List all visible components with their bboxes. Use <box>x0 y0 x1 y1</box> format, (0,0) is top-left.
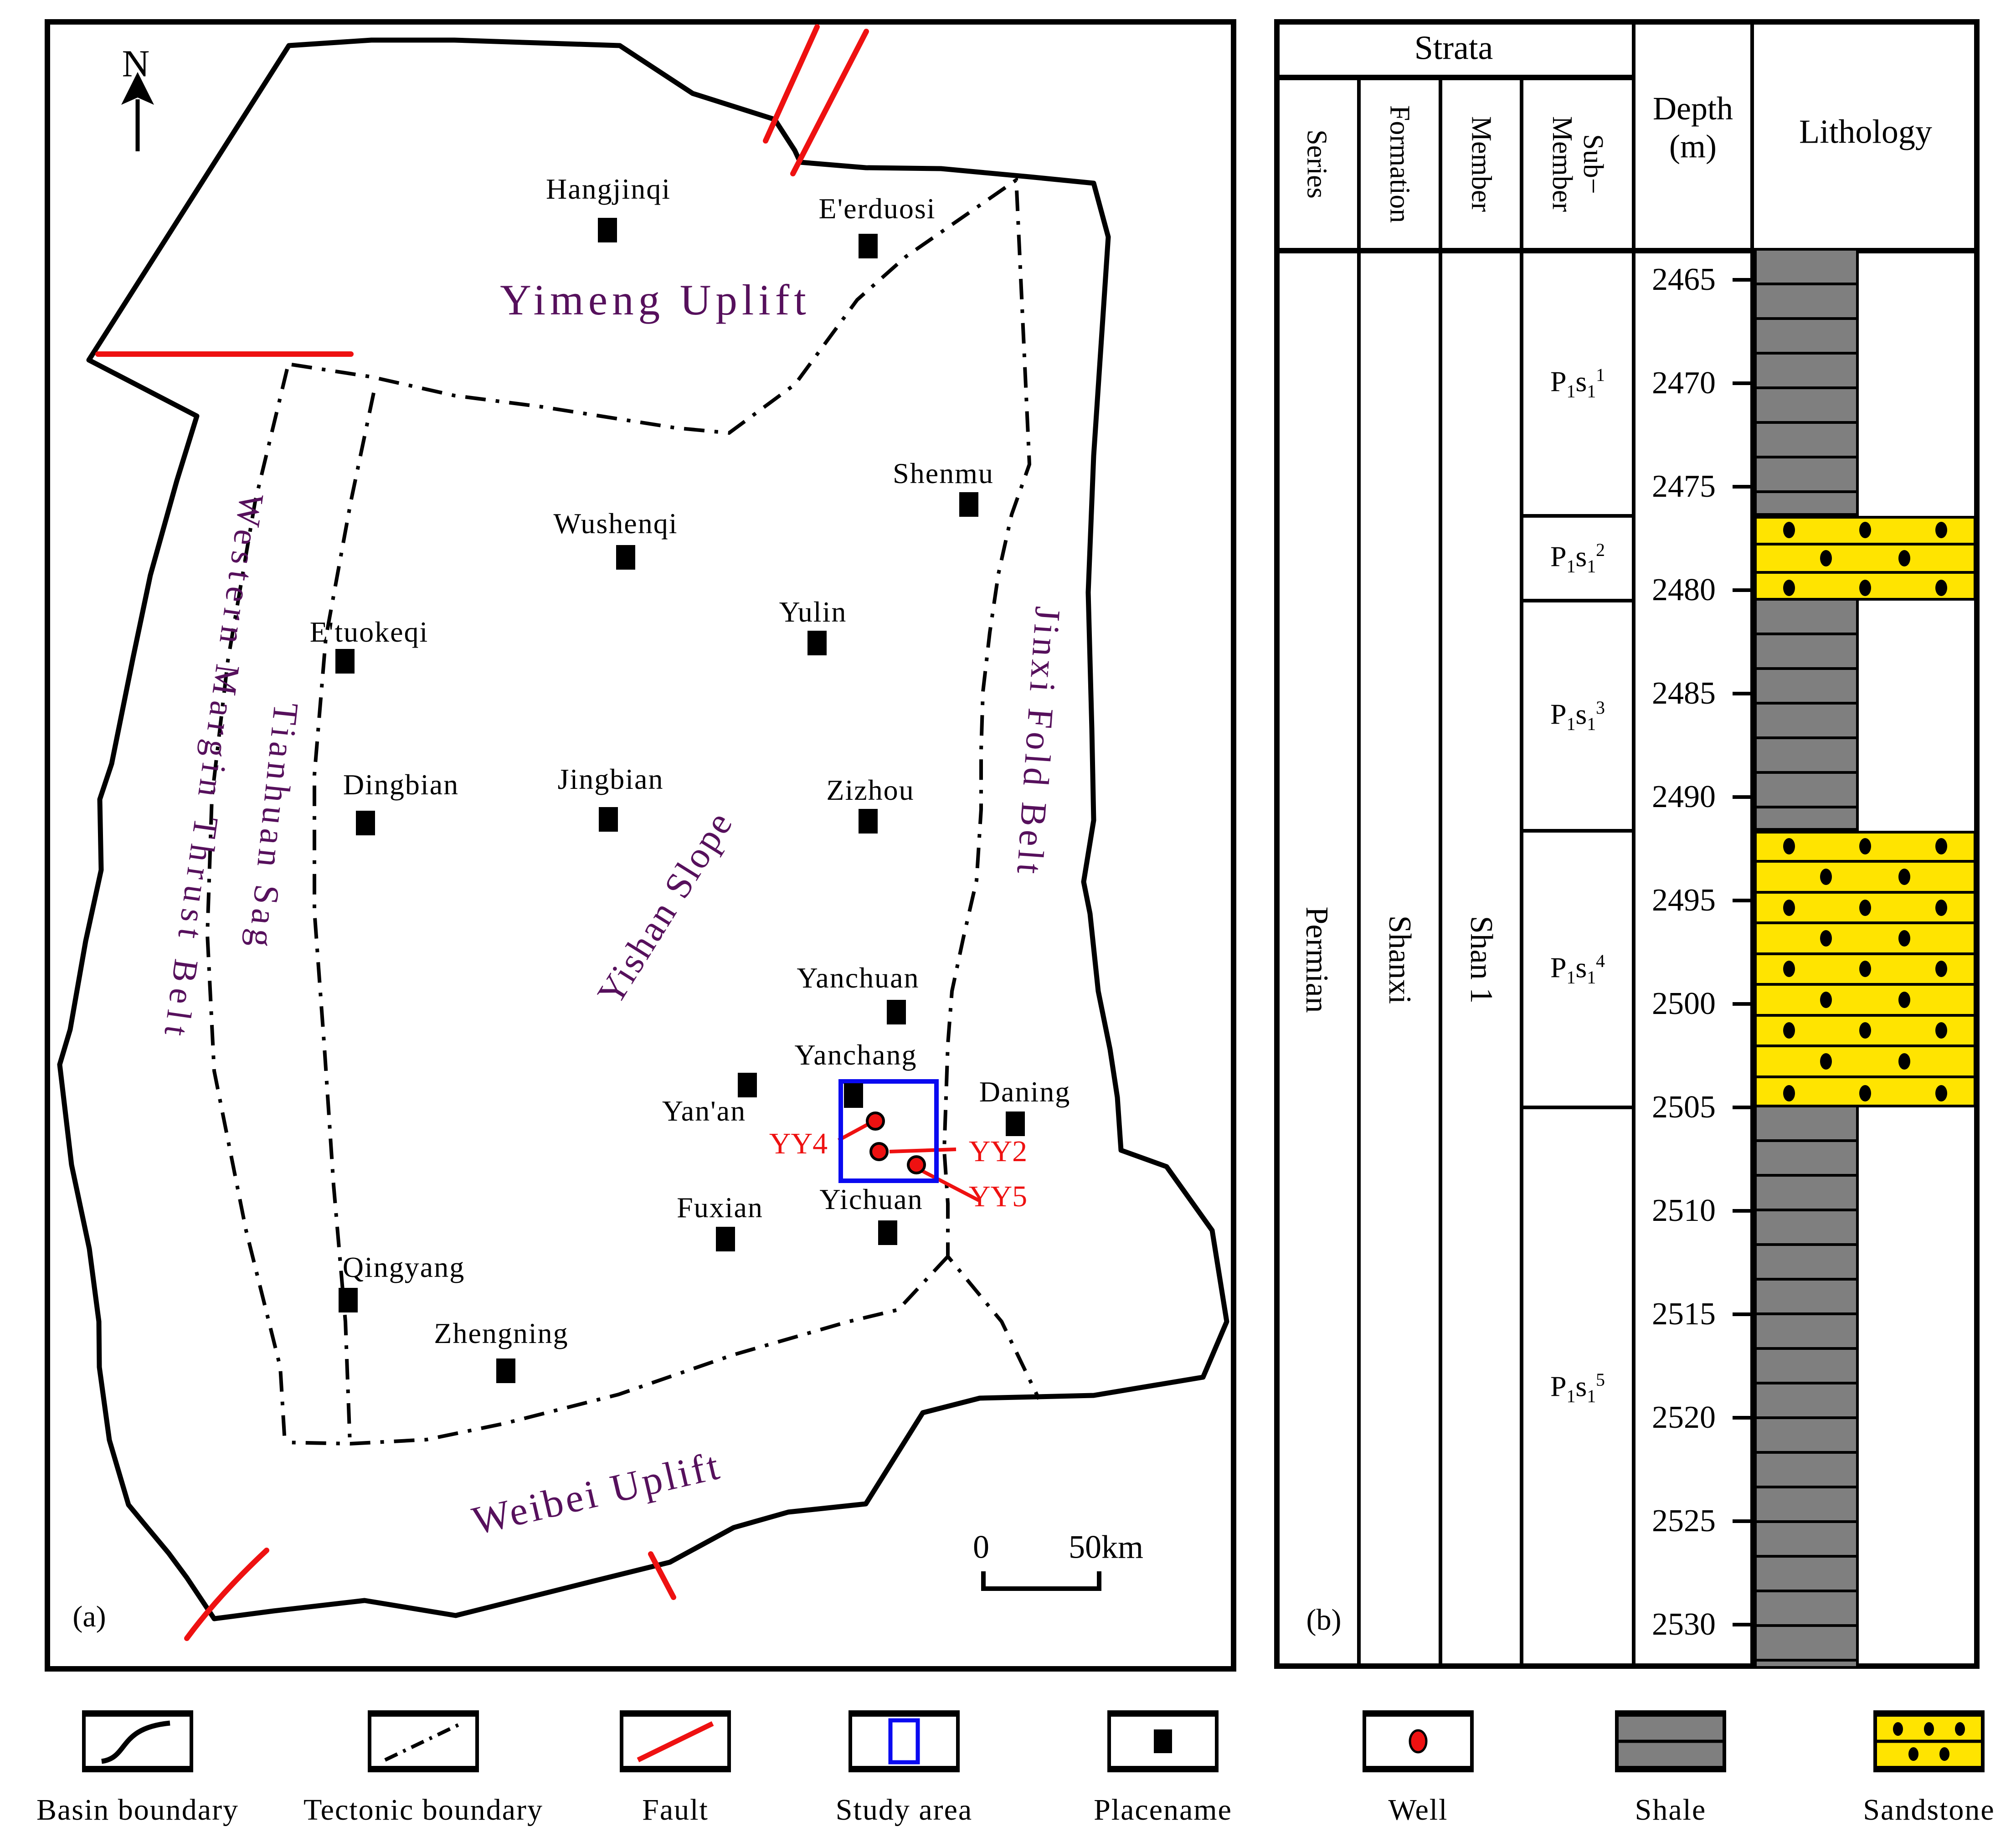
sandstone-band <box>1757 545 1974 574</box>
placename-marker <box>716 1227 735 1251</box>
tectonic-boundary-weibei <box>285 1256 948 1444</box>
lithology-shale-bar <box>1754 601 1859 831</box>
submember-label: P1s15 <box>1550 1369 1605 1407</box>
legend-label-tectonic-boundary: Tectonic boundary <box>303 1793 543 1827</box>
sandstone-dot <box>1859 580 1871 596</box>
depth-tick-label: 2510 <box>1652 1193 1716 1229</box>
well-label-yy5: YY5 <box>969 1179 1027 1214</box>
placename-marker <box>598 218 617 242</box>
sandstone-dot <box>1783 900 1795 916</box>
well-dot-icon <box>1366 1717 1470 1766</box>
lithology-shale-bar <box>1754 1107 1859 1669</box>
legend-label-study-area: Study area <box>836 1793 972 1827</box>
sandstone-fill-icon <box>1877 1717 1981 1766</box>
sandstone-band <box>1757 1078 1974 1109</box>
sandstone-band <box>1757 863 1974 893</box>
leader-yy2 <box>890 1149 956 1152</box>
fault-line-icon <box>623 1717 727 1766</box>
placename-label: Hangjinqi <box>546 172 671 206</box>
sandstone-dot <box>1898 1053 1910 1070</box>
lithology-sandstone-bar <box>1754 516 1976 601</box>
scale-bar <box>983 1571 1099 1589</box>
col-line-series-formation <box>1357 77 1361 1669</box>
well-dot-yy5 <box>907 1155 926 1174</box>
sandstone-band <box>1757 924 1974 955</box>
placename-label: Zizhou <box>826 773 914 807</box>
sandstone-dot <box>1898 869 1910 885</box>
sandstone-dot <box>1859 838 1871 854</box>
submember-divider <box>1523 1106 1632 1109</box>
depth-tick-mark <box>1733 899 1753 902</box>
depth-tick-mark <box>1733 381 1753 385</box>
depth-tick-label: 2475 <box>1652 468 1716 505</box>
header-strata: Strata <box>1414 29 1493 68</box>
placename-label: E'erduosi <box>818 192 936 226</box>
sandstone-dot <box>1783 838 1795 854</box>
placename-label: Fuxian <box>677 1191 763 1225</box>
submember-label: P1s14 <box>1550 950 1605 988</box>
submember-divider <box>1523 829 1632 833</box>
sandstone-dot <box>1820 550 1832 566</box>
placename-square-icon <box>1111 1717 1215 1766</box>
sandstone-dot <box>1820 1053 1832 1070</box>
placename-label: Yan'an <box>662 1094 746 1128</box>
placename-label: Yulin <box>779 595 847 629</box>
placename-label: Daning <box>979 1075 1070 1109</box>
sandstone-dot <box>1783 961 1795 977</box>
study-rect-icon <box>852 1717 956 1766</box>
submember-label: P1s11 <box>1550 365 1605 402</box>
placename-marker <box>959 492 978 517</box>
depth-tick-label: 2520 <box>1652 1400 1716 1436</box>
col-line-depth-lithology <box>1750 19 1754 1669</box>
depth-tick-mark <box>1733 588 1753 592</box>
depth-tick-mark <box>1733 1623 1753 1626</box>
depth-tick-label: 2525 <box>1652 1503 1716 1539</box>
tectonic-line-icon <box>371 1717 475 1766</box>
depth-tick-label: 2470 <box>1652 365 1716 401</box>
sandstone-dot <box>1898 550 1910 566</box>
submember-label: P1s12 <box>1550 540 1605 577</box>
legend-box-tectonic-boundary <box>368 1710 479 1772</box>
placename-label: Jingbian <box>558 762 664 796</box>
header-lithology: Lithology <box>1799 113 1932 152</box>
fault-top-1 <box>766 27 817 141</box>
header-depth: Depth (m) <box>1653 90 1733 165</box>
depth-tick-label: 2515 <box>1652 1296 1716 1333</box>
placename-label: Zhengning <box>434 1317 568 1350</box>
legend-box-study-area <box>849 1710 960 1772</box>
sandstone-band <box>1757 955 1974 986</box>
legend-label-basin-boundary: Basin boundary <box>36 1793 239 1827</box>
sandstone-dot <box>1859 522 1871 538</box>
sandstone-dot <box>1898 992 1910 1008</box>
legend-box-shale <box>1615 1710 1726 1772</box>
legend-label-shale: Shale <box>1635 1793 1707 1827</box>
well-dot-yy4 <box>866 1111 885 1131</box>
sandstone-dot <box>1783 1022 1795 1039</box>
legend-box-sandstone <box>1873 1710 1985 1772</box>
sandstone-dot <box>1859 961 1871 977</box>
sandstone-dot <box>1935 580 1947 596</box>
legend-box-fault <box>620 1710 731 1772</box>
sandstone-band <box>1757 1047 1974 1078</box>
sandstone-dot <box>1935 522 1947 538</box>
depth-tick-label: 2490 <box>1652 779 1716 815</box>
lithology-shale-bar <box>1754 251 1859 516</box>
placename-marker <box>335 649 355 674</box>
depth-tick-label: 2495 <box>1652 882 1716 919</box>
col-line-submember-depth <box>1632 19 1635 1669</box>
sandstone-dot <box>1783 1085 1795 1101</box>
lithology-sandstone-bar <box>1754 831 1976 1107</box>
placename-marker <box>878 1220 897 1245</box>
submember-label: P1s13 <box>1550 697 1605 734</box>
depth-tick-mark <box>1733 1519 1753 1523</box>
sandstone-dot <box>1820 869 1832 885</box>
depth-tick-mark <box>1733 1106 1753 1109</box>
header-series: Series <box>1301 129 1333 199</box>
header-sub-member: Sub− Member <box>1547 116 1609 212</box>
placename-marker <box>807 631 827 655</box>
placename-label: E'tuokeqi <box>310 615 429 649</box>
depth-tick-label: 2530 <box>1652 1606 1716 1643</box>
placename-marker <box>859 234 878 258</box>
scale-zero-label: 0 <box>973 1528 989 1566</box>
sandstone-band <box>1757 894 1974 924</box>
tectonic-boundary-tianhuan <box>314 393 374 1444</box>
placename-marker <box>859 809 878 834</box>
formation-value: Shanxi <box>1381 916 1418 1004</box>
placename-marker <box>844 1083 863 1108</box>
sandstone-dot <box>1783 522 1795 538</box>
placename-label: Qingyang <box>343 1250 465 1284</box>
placename-marker <box>887 1000 906 1024</box>
placename-marker <box>599 807 618 832</box>
placename-marker <box>356 811 375 835</box>
depth-tick-label: 2500 <box>1652 986 1716 1022</box>
north-label: N <box>122 42 150 86</box>
strata-divider <box>1274 75 1634 80</box>
depth-tick-mark <box>1733 485 1753 489</box>
col-line-formation-member <box>1439 77 1442 1669</box>
submember-divider <box>1523 599 1632 602</box>
figure-root: { "colors": { "region_purple": "#56105c"… <box>0 0 2016 1837</box>
placename-marker <box>1006 1111 1025 1136</box>
well-label-yy2: YY2 <box>969 1134 1027 1169</box>
sandstone-dot <box>1898 930 1910 947</box>
sandstone-dot <box>1783 580 1795 596</box>
depth-tick-label: 2505 <box>1652 1089 1716 1126</box>
depth-tick-mark <box>1733 692 1753 695</box>
scale-distance-label: 50km <box>1069 1528 1143 1566</box>
depth-tick-mark <box>1733 278 1753 282</box>
placename-marker <box>738 1073 757 1097</box>
map-panel-label: (a) <box>72 1600 106 1634</box>
column-panel-label: (b) <box>1306 1603 1342 1637</box>
depth-tick-mark <box>1733 1416 1753 1420</box>
header-formation: Formation <box>1383 105 1416 223</box>
legend-box-placename <box>1107 1710 1219 1772</box>
legend-box-well <box>1363 1710 1474 1772</box>
placename-label: Dingbian <box>343 768 459 802</box>
depth-tick-label: 2485 <box>1652 675 1716 712</box>
legend-label-fault: Fault <box>642 1793 709 1827</box>
sandstone-dot <box>1859 900 1871 916</box>
placename-label: Shenmu <box>893 457 994 490</box>
sandstone-dot <box>1935 961 1947 977</box>
sandstone-band <box>1757 1017 1974 1047</box>
legend-label-sandstone: Sandstone <box>1863 1793 1995 1827</box>
placename-label: Wushenqi <box>554 507 678 540</box>
submember-divider <box>1523 514 1632 518</box>
depth-tick-mark <box>1733 1209 1753 1213</box>
header-body-divider <box>1274 248 1980 253</box>
col-line-member-submember <box>1520 77 1523 1669</box>
header-member: Member <box>1465 116 1497 212</box>
legend-label-well: Well <box>1389 1793 1448 1827</box>
placename-label: Yanchang <box>794 1038 917 1072</box>
placename-marker <box>496 1358 515 1383</box>
well-dot-yy2 <box>869 1142 889 1161</box>
sandstone-dot <box>1935 1022 1947 1039</box>
region-label-yimeng-uplift: Yimeng Uplift <box>500 275 811 325</box>
sandstone-band <box>1757 517 1974 545</box>
well-label-yy4: YY4 <box>769 1127 828 1161</box>
sandstone-dot <box>1820 930 1832 947</box>
placename-label: Yichuan <box>819 1183 923 1216</box>
depth-tick-label: 2480 <box>1652 572 1716 608</box>
legend-box-basin-boundary <box>82 1710 193 1772</box>
sandstone-band <box>1757 832 1974 863</box>
legend-label-placename: Placename <box>1094 1793 1232 1827</box>
placename-marker <box>616 545 635 570</box>
sandstone-band <box>1757 574 1974 602</box>
placename-marker <box>339 1288 358 1312</box>
basin-line-icon <box>86 1717 190 1766</box>
sandstone-dot <box>1935 900 1947 916</box>
member-value: Shan 1 <box>1463 916 1499 1004</box>
depth-tick-mark <box>1733 1002 1753 1006</box>
sandstone-dot <box>1935 1085 1947 1101</box>
depth-tick-mark <box>1733 1312 1753 1316</box>
sandstone-band <box>1757 986 1974 1016</box>
sandstone-dot <box>1935 838 1947 854</box>
shale-fill-icon <box>1619 1717 1723 1766</box>
sandstone-dot <box>1859 1085 1871 1101</box>
sandstone-dot <box>1859 1022 1871 1039</box>
depth-tick-mark <box>1733 795 1753 799</box>
placename-label: Yanchuan <box>797 961 919 995</box>
sandstone-dot <box>1820 992 1832 1008</box>
series-value: Permian <box>1298 906 1335 1013</box>
depth-tick-label: 2465 <box>1652 262 1716 298</box>
